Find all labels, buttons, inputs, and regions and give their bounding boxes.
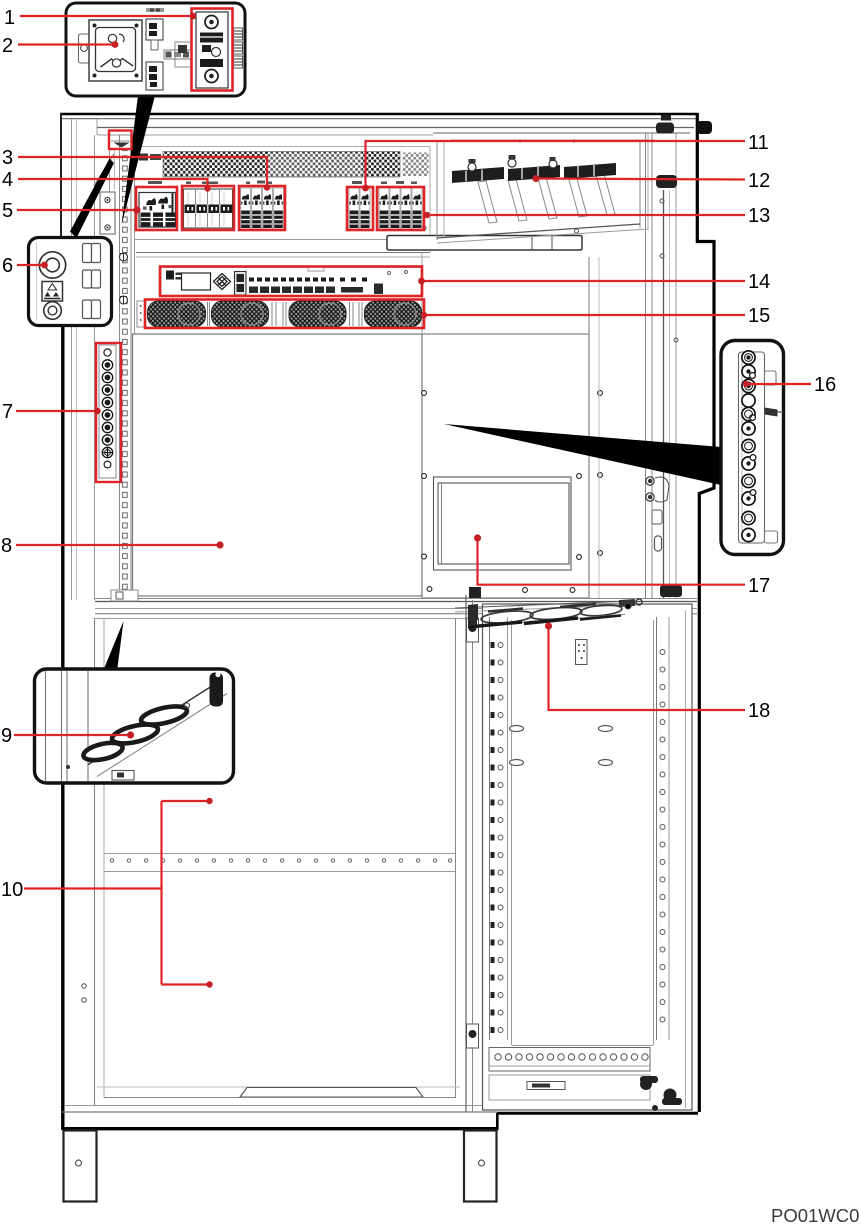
svg-text:6: 6 (2, 255, 13, 277)
svg-text:5: 5 (2, 200, 13, 222)
svg-text:7: 7 (2, 401, 13, 423)
svg-text:15: 15 (748, 305, 770, 327)
svg-text:10: 10 (1, 879, 23, 901)
svg-text:18: 18 (748, 700, 770, 722)
svg-text:13: 13 (748, 205, 770, 227)
svg-text:14: 14 (748, 271, 770, 293)
svg-text:2: 2 (2, 35, 13, 57)
svg-text:1: 1 (4, 7, 15, 29)
svg-text:12: 12 (748, 170, 770, 192)
svg-text:11: 11 (748, 132, 769, 154)
svg-text:4: 4 (2, 169, 13, 191)
svg-text:16: 16 (814, 374, 836, 396)
svg-text:8: 8 (1, 535, 12, 557)
svg-text:9: 9 (1, 725, 12, 747)
svg-text:3: 3 (2, 147, 13, 169)
svg-text:17: 17 (748, 575, 770, 597)
svg-text:PO01WC0123: PO01WC0123 (771, 1205, 860, 1226)
